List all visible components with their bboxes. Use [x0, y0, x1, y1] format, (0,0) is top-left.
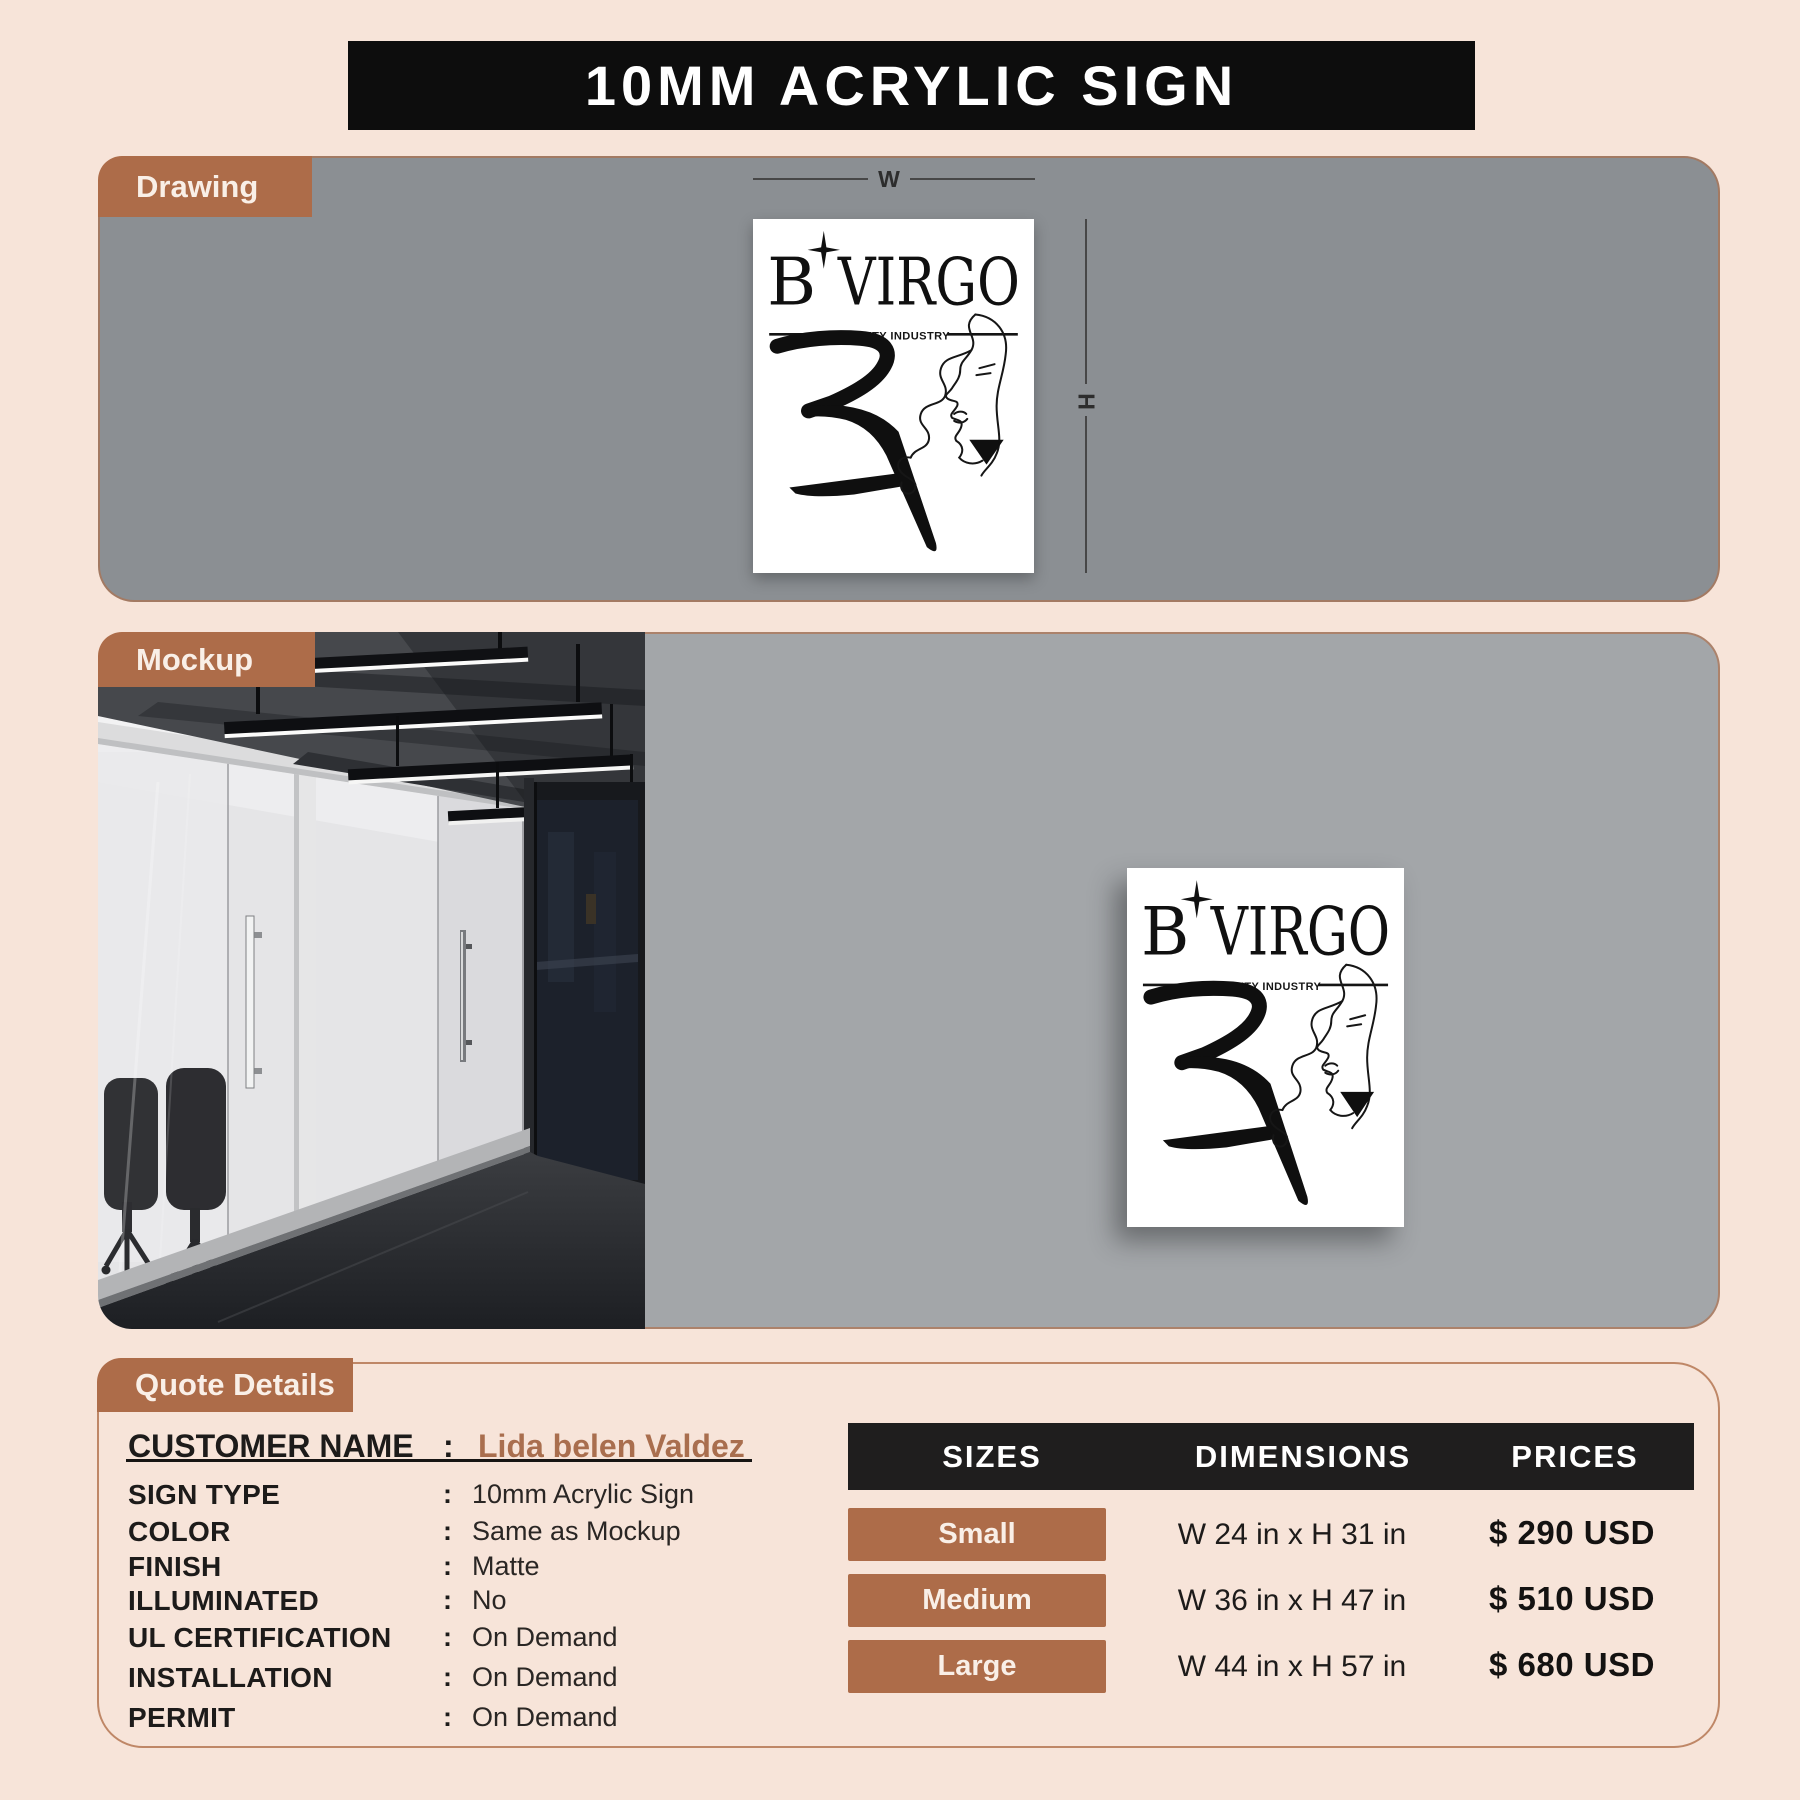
field-colon: : — [443, 1551, 452, 1582]
field-colon: : — [443, 1622, 452, 1653]
field-label: UL CERTIFICATION — [128, 1622, 392, 1654]
pricing-table-header: SIZES DIMENSIONS PRICES — [848, 1423, 1694, 1490]
logo-word-virgo: VIRGO — [837, 244, 1020, 320]
field-colon: : — [443, 1516, 452, 1547]
field-colon: : — [443, 1662, 452, 1693]
field-colon: : — [443, 1585, 452, 1616]
field-value: Matte — [472, 1551, 540, 1582]
height-marker-line-top — [1085, 219, 1087, 384]
logo-letter-b: B — [1141, 893, 1189, 970]
brand-sign-graphic-mockup: B VIRGO BEAUTY INDUSTRY — [1127, 868, 1404, 1227]
logo-word-virgo: VIRGO — [1210, 893, 1390, 970]
field-label: PERMIT — [128, 1702, 236, 1734]
quote-details-tab: Quote Details — [97, 1358, 353, 1412]
size-label: Medium — [922, 1584, 1032, 1617]
mockup-tab-label: Mockup — [136, 642, 253, 678]
field-label: FINISH — [128, 1551, 222, 1583]
customer-underline — [126, 1459, 752, 1462]
triangle-icon — [969, 440, 1003, 465]
price-small: $ 290 USD — [1440, 1514, 1704, 1552]
dimensions-large: W 44 in x H 57 in — [1110, 1650, 1474, 1684]
monogram-icon — [777, 338, 936, 552]
drawing-tab: Drawing — [98, 156, 312, 217]
size-label: Small — [938, 1518, 1015, 1551]
brand-logo: B VIRGO BEAUTY INDUSTRY — [767, 231, 1020, 342]
field-value: On Demand — [472, 1662, 618, 1693]
dimensions-medium: W 36 in x H 47 in — [1110, 1584, 1474, 1618]
field-label: ILLUMINATED — [128, 1585, 319, 1617]
size-label: Large — [938, 1650, 1017, 1683]
field-value: On Demand — [472, 1622, 618, 1653]
field-value: Same as Mockup — [472, 1516, 681, 1547]
field-value: On Demand — [472, 1702, 618, 1733]
sign-artwork-drawing: B VIRGO BEAUTY INDUSTRY — [753, 219, 1034, 573]
mockup-tab: Mockup — [98, 632, 315, 687]
quote-field-row: UL CERTIFICATION : On Demand — [0, 1622, 900, 1656]
dark-doorway — [524, 778, 645, 1212]
sign-artwork-mockup: B VIRGO BEAUTY INDUSTRY — [1127, 868, 1404, 1227]
field-value: No — [472, 1585, 507, 1616]
width-marker-line-left — [753, 178, 868, 180]
quote-field-row: INSTALLATION : On Demand — [0, 1662, 900, 1696]
price-large: $ 680 USD — [1440, 1646, 1704, 1684]
field-label: SIGN TYPE — [128, 1479, 280, 1511]
monogram-icon — [1151, 988, 1308, 1205]
dimensions-small: W 24 in x H 31 in — [1110, 1518, 1474, 1552]
quote-field-row: PERMIT : On Demand — [0, 1702, 900, 1736]
field-label: COLOR — [128, 1516, 231, 1548]
quote-field-row: FINISH : Matte — [0, 1551, 900, 1585]
field-colon: : — [443, 1702, 452, 1733]
brand-sign-graphic: B VIRGO BEAUTY INDUSTRY — [753, 219, 1034, 573]
field-label: INSTALLATION — [128, 1662, 333, 1694]
triangle-icon — [1340, 1092, 1374, 1117]
header-sizes: SIZES — [942, 1439, 1042, 1475]
size-button-small: Small — [848, 1508, 1106, 1561]
title-bar: 10MM ACRYLIC SIGN — [348, 41, 1475, 130]
drawing-tab-label: Drawing — [136, 169, 258, 205]
size-button-medium: Medium — [848, 1574, 1106, 1627]
quote-field-row: ILLUMINATED : No — [0, 1585, 900, 1619]
header-prices: PRICES — [1511, 1439, 1638, 1475]
office-photo — [98, 632, 645, 1329]
quote-field-row: SIGN TYPE : 10mm Acrylic Sign — [0, 1479, 900, 1513]
quote-field-row: COLOR : Same as Mockup — [0, 1516, 900, 1550]
width-marker-line-right — [910, 178, 1035, 180]
brand-logo-mockup: B VIRGO BEAUTY INDUSTRY — [1141, 880, 1390, 993]
header-dimensions: DIMENSIONS — [1195, 1439, 1411, 1475]
quote-details-tab-label: Quote Details — [135, 1367, 335, 1403]
field-colon: : — [443, 1479, 452, 1510]
price-medium: $ 510 USD — [1440, 1580, 1704, 1618]
logo-letter-b: B — [767, 244, 816, 320]
width-marker-label: W — [868, 166, 910, 193]
office-photo-illustration — [98, 632, 645, 1329]
field-value: 10mm Acrylic Sign — [472, 1479, 694, 1510]
size-button-large: Large — [848, 1640, 1106, 1693]
height-marker-label: H — [1073, 389, 1100, 415]
quote-sheet-page: 10MM ACRYLIC SIGN Drawing W H B VIRGO BE… — [0, 0, 1800, 1800]
page-title: 10MM ACRYLIC SIGN — [585, 53, 1238, 118]
height-marker-line-bottom — [1085, 416, 1087, 573]
